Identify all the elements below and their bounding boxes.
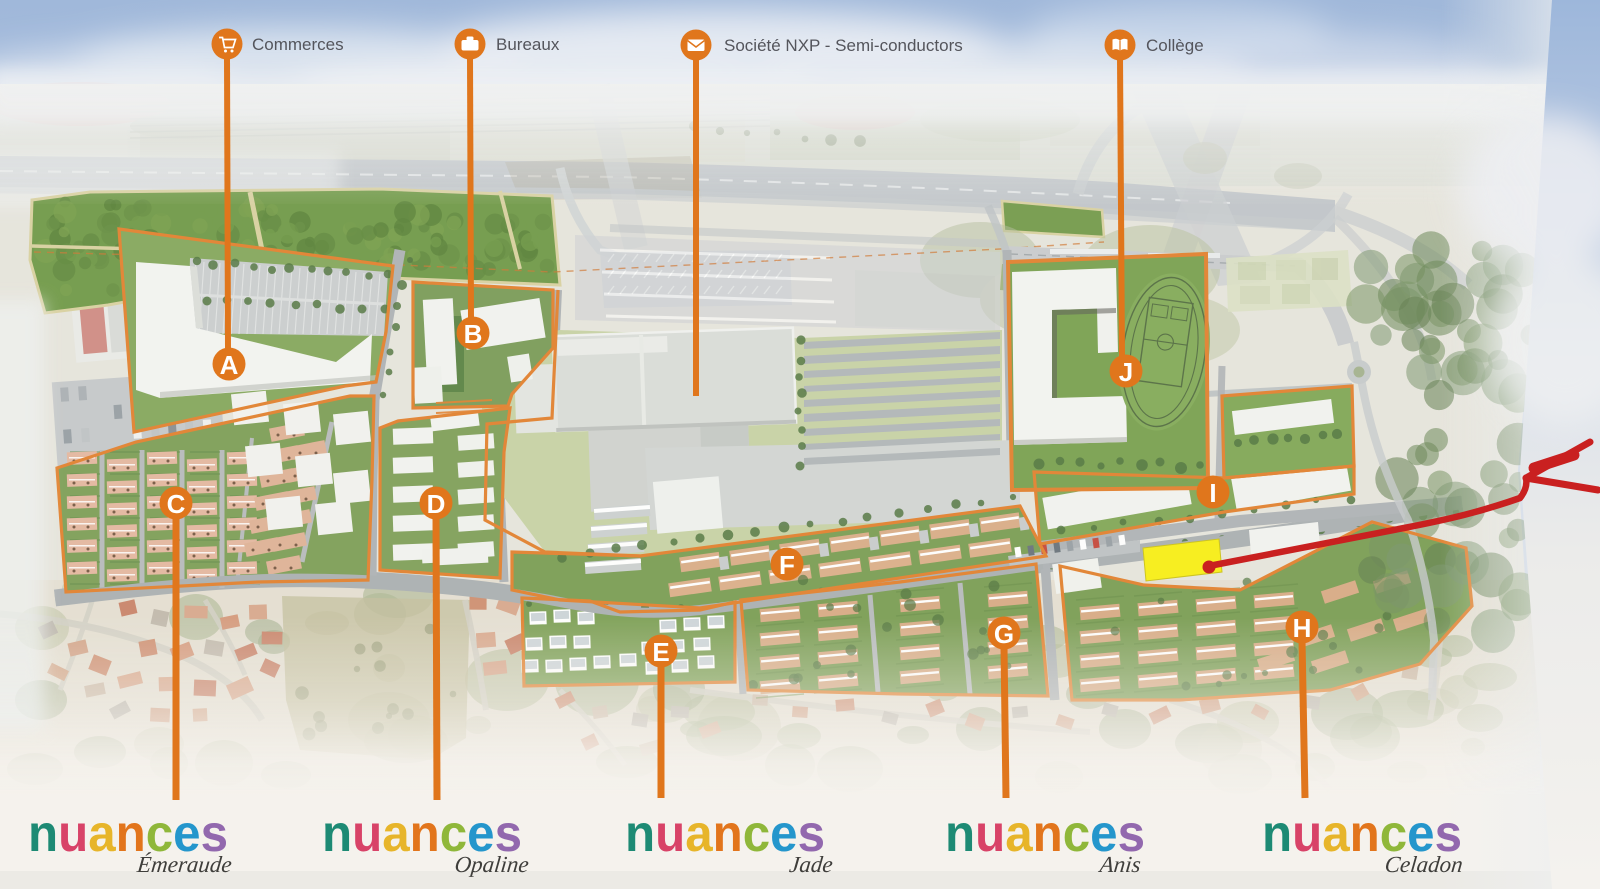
- svg-text:Anis: Anis: [1097, 851, 1143, 877]
- svg-text:Jade: Jade: [788, 851, 834, 877]
- svg-text:B: B: [464, 319, 483, 349]
- svg-text:Bureaux: Bureaux: [496, 35, 560, 54]
- svg-text:Celadon: Celadon: [1384, 851, 1465, 877]
- svg-text:E: E: [652, 637, 669, 667]
- svg-text:D: D: [427, 489, 446, 519]
- svg-text:A: A: [220, 350, 239, 380]
- svg-text:C: C: [167, 489, 186, 519]
- svg-text:Société NXP - Semi-conductors: Société NXP - Semi-conductors: [724, 36, 963, 55]
- svg-text:H: H: [1293, 613, 1312, 643]
- svg-text:Émeraude: Émeraude: [135, 851, 233, 877]
- svg-text:I: I: [1209, 478, 1216, 508]
- svg-text:F: F: [779, 550, 795, 580]
- svg-text:Commerces: Commerces: [252, 35, 344, 54]
- svg-text:G: G: [994, 619, 1014, 649]
- svg-text:J: J: [1119, 357, 1133, 387]
- svg-text:Collège: Collège: [1146, 36, 1204, 55]
- svg-text:Opaline: Opaline: [453, 851, 530, 877]
